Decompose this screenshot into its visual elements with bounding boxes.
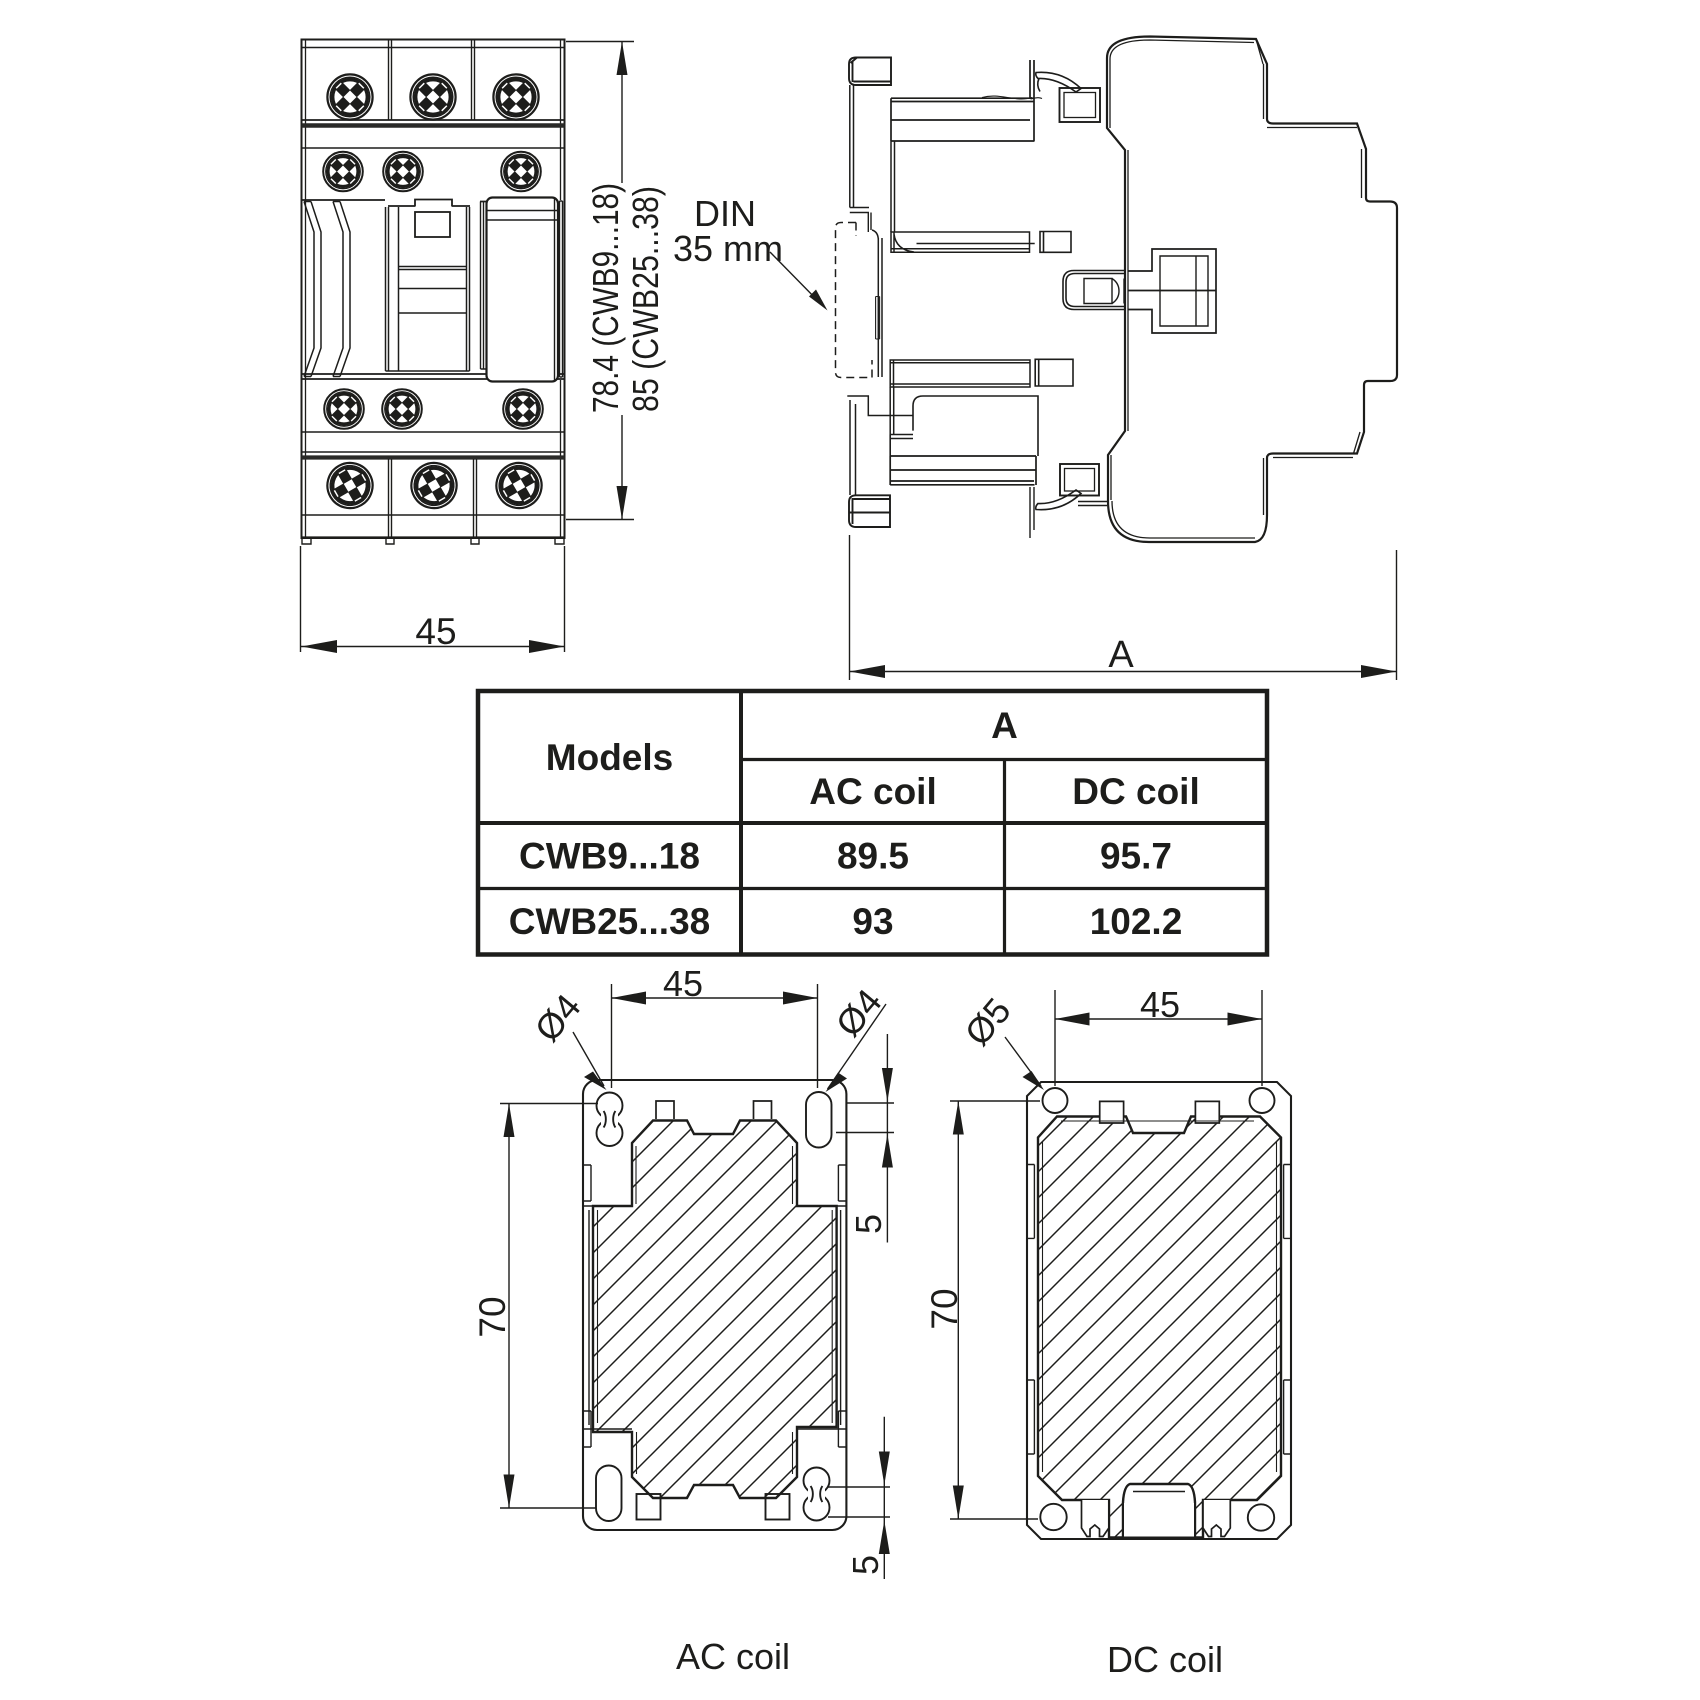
svg-text:DC coil: DC coil xyxy=(1107,1639,1223,1680)
svg-text:78.4 (CWB9...18): 78.4 (CWB9...18) xyxy=(585,183,626,413)
svg-text:95.7: 95.7 xyxy=(1100,836,1172,877)
svg-text:Models: Models xyxy=(546,737,673,778)
svg-text:A: A xyxy=(1108,634,1134,676)
svg-text:5: 5 xyxy=(848,1214,889,1234)
svg-text:70: 70 xyxy=(924,1288,965,1329)
svg-text:CWB9...18: CWB9...18 xyxy=(519,836,700,877)
svg-text:AC coil: AC coil xyxy=(809,771,936,812)
svg-text:93: 93 xyxy=(852,901,893,942)
svg-text:5: 5 xyxy=(845,1555,886,1575)
svg-text:45: 45 xyxy=(663,963,703,1004)
svg-text:35 mm: 35 mm xyxy=(673,228,783,269)
svg-text:102.2: 102.2 xyxy=(1090,901,1183,942)
svg-text:70: 70 xyxy=(472,1296,513,1337)
svg-text:A: A xyxy=(991,705,1018,746)
svg-text:DC coil: DC coil xyxy=(1072,771,1199,812)
svg-text:45: 45 xyxy=(415,611,456,652)
svg-text:89.5: 89.5 xyxy=(837,836,909,877)
svg-text:CWB25...38: CWB25...38 xyxy=(509,901,711,942)
svg-text:85 (CWB25...38): 85 (CWB25...38) xyxy=(625,186,666,412)
svg-text:45: 45 xyxy=(1140,984,1180,1025)
svg-text:AC coil: AC coil xyxy=(676,1636,790,1677)
